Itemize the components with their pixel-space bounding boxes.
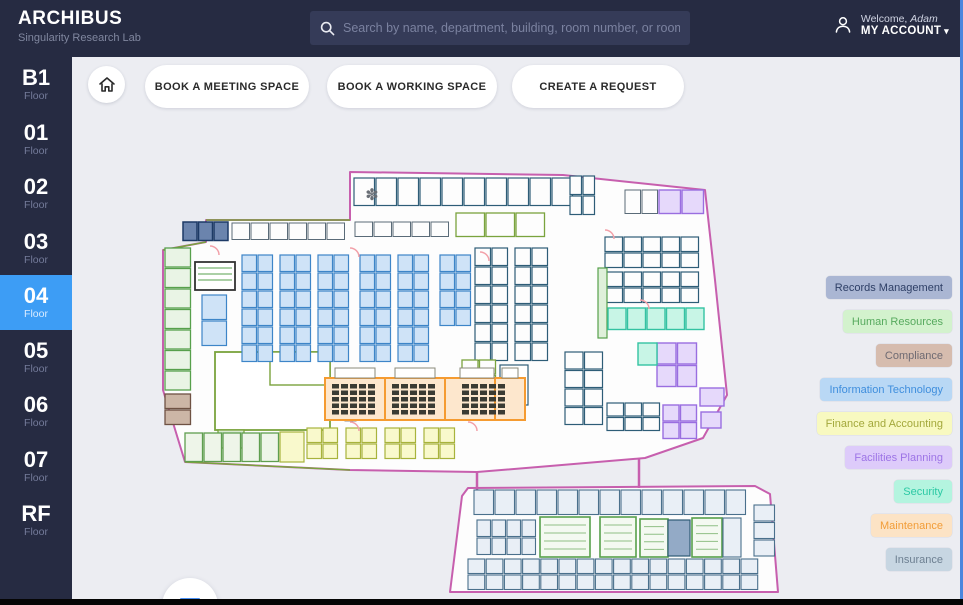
app-title: ARCHIBUS bbox=[18, 8, 141, 30]
sidebar-item-floor-01[interactable]: 01 Floor bbox=[0, 112, 72, 167]
home-button[interactable] bbox=[88, 66, 125, 103]
sidebar-item-floor-b1[interactable]: B1 Floor bbox=[0, 57, 72, 112]
legend-chip-records-management[interactable]: Records Management bbox=[826, 276, 952, 299]
sidebar-item-floor-03[interactable]: 03 Floor bbox=[0, 221, 72, 276]
sidebar-item-floor-06[interactable]: 06 Floor bbox=[0, 384, 72, 439]
legend-chip-compliance[interactable]: Compliance bbox=[876, 344, 952, 367]
floor-plan-svg[interactable]: ✽ bbox=[150, 160, 800, 600]
sidebar-item-floor-05[interactable]: 05 Floor bbox=[0, 330, 72, 385]
book-meeting-space-button[interactable]: BOOK A MEETING SPACE bbox=[145, 65, 309, 108]
sidebar-item-floor-04[interactable]: 04 Floor bbox=[0, 275, 72, 330]
account-menu[interactable]: Welcome, Adam MY ACCOUNT▾ bbox=[833, 13, 949, 37]
welcome-text: Welcome, Adam bbox=[861, 13, 949, 25]
app-header: ARCHIBUS Singularity Research Lab Welcom… bbox=[0, 0, 963, 57]
my-account-label: MY ACCOUNT▾ bbox=[861, 25, 949, 37]
svg-text:✽: ✽ bbox=[365, 187, 378, 204]
user-name: Adam bbox=[910, 13, 937, 25]
legend-chip-security[interactable]: Security bbox=[894, 480, 952, 503]
legend-chip-insurance[interactable]: Insurance bbox=[886, 548, 952, 571]
legend-chip-finance-and-accounting[interactable]: Finance and Accounting bbox=[817, 412, 952, 435]
search-icon bbox=[320, 21, 335, 36]
sidebar-item-floor-rf[interactable]: RF Floor bbox=[0, 493, 72, 548]
department-legend: Records Management Human Resources Compl… bbox=[817, 276, 952, 571]
legend-chip-human-resources[interactable]: Human Resources bbox=[843, 310, 952, 333]
app-subtitle: Singularity Research Lab bbox=[18, 32, 141, 44]
floor-sidebar: B1 Floor 01 Floor 02 Floor 03 Floor 04 F… bbox=[0, 57, 72, 605]
sidebar-item-floor-02[interactable]: 02 Floor bbox=[0, 166, 72, 221]
chevron-down-icon: ▾ bbox=[944, 26, 949, 36]
legend-chip-maintenance[interactable]: Maintenance bbox=[871, 514, 952, 537]
window-bottom-bar bbox=[0, 599, 963, 605]
sidebar-item-floor-07[interactable]: 07 Floor bbox=[0, 439, 72, 494]
user-icon bbox=[833, 15, 853, 35]
app-logo: ARCHIBUS Singularity Research Lab bbox=[18, 8, 141, 44]
search-input[interactable] bbox=[343, 21, 680, 35]
main-content: BOOK A MEETING SPACE BOOK A WORKING SPAC… bbox=[72, 57, 960, 605]
search-bar[interactable] bbox=[310, 11, 690, 45]
book-working-space-button[interactable]: BOOK A WORKING SPACE bbox=[327, 65, 497, 108]
rooms-records-management[interactable] bbox=[183, 222, 228, 241]
home-icon bbox=[98, 76, 116, 93]
legend-chip-information-technology[interactable]: Information Technology bbox=[820, 378, 952, 401]
legend-chip-facilities-planning[interactable]: Facilities Planning bbox=[845, 446, 952, 469]
create-request-button[interactable]: CREATE A REQUEST bbox=[512, 65, 684, 108]
floor-plan[interactable]: ✽ bbox=[150, 160, 800, 600]
